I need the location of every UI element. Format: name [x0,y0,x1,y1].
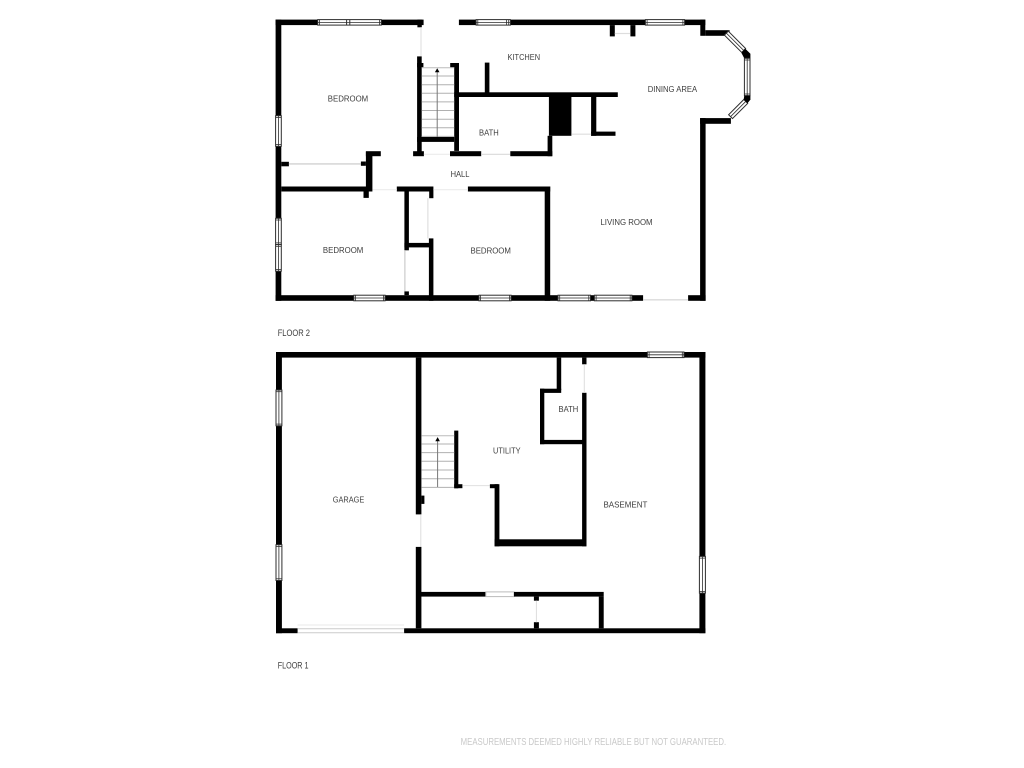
svg-text:DINING AREA: DINING AREA [648,84,698,94]
svg-text:BATH: BATH [479,128,499,138]
svg-text:BEDROOM: BEDROOM [323,245,363,255]
svg-text:BASEMENT: BASEMENT [603,499,647,509]
svg-text:FLOOR 2: FLOOR 2 [278,328,310,338]
svg-text:KITCHEN: KITCHEN [508,52,541,62]
svg-text:HALL: HALL [451,169,470,179]
svg-text:UTILITY: UTILITY [493,446,521,456]
svg-text:FLOOR 1: FLOOR 1 [278,660,309,670]
svg-text:GARAGE: GARAGE [333,495,365,505]
svg-text:BEDROOM: BEDROOM [471,245,511,255]
svg-text:BEDROOM: BEDROOM [328,93,368,103]
svg-text:BATH: BATH [559,404,579,414]
svg-text:LIVING ROOM: LIVING ROOM [600,217,652,227]
svg-text:MEASUREMENTS DEEMED HIGHLY REL: MEASUREMENTS DEEMED HIGHLY RELIABLE BUT … [461,737,727,748]
